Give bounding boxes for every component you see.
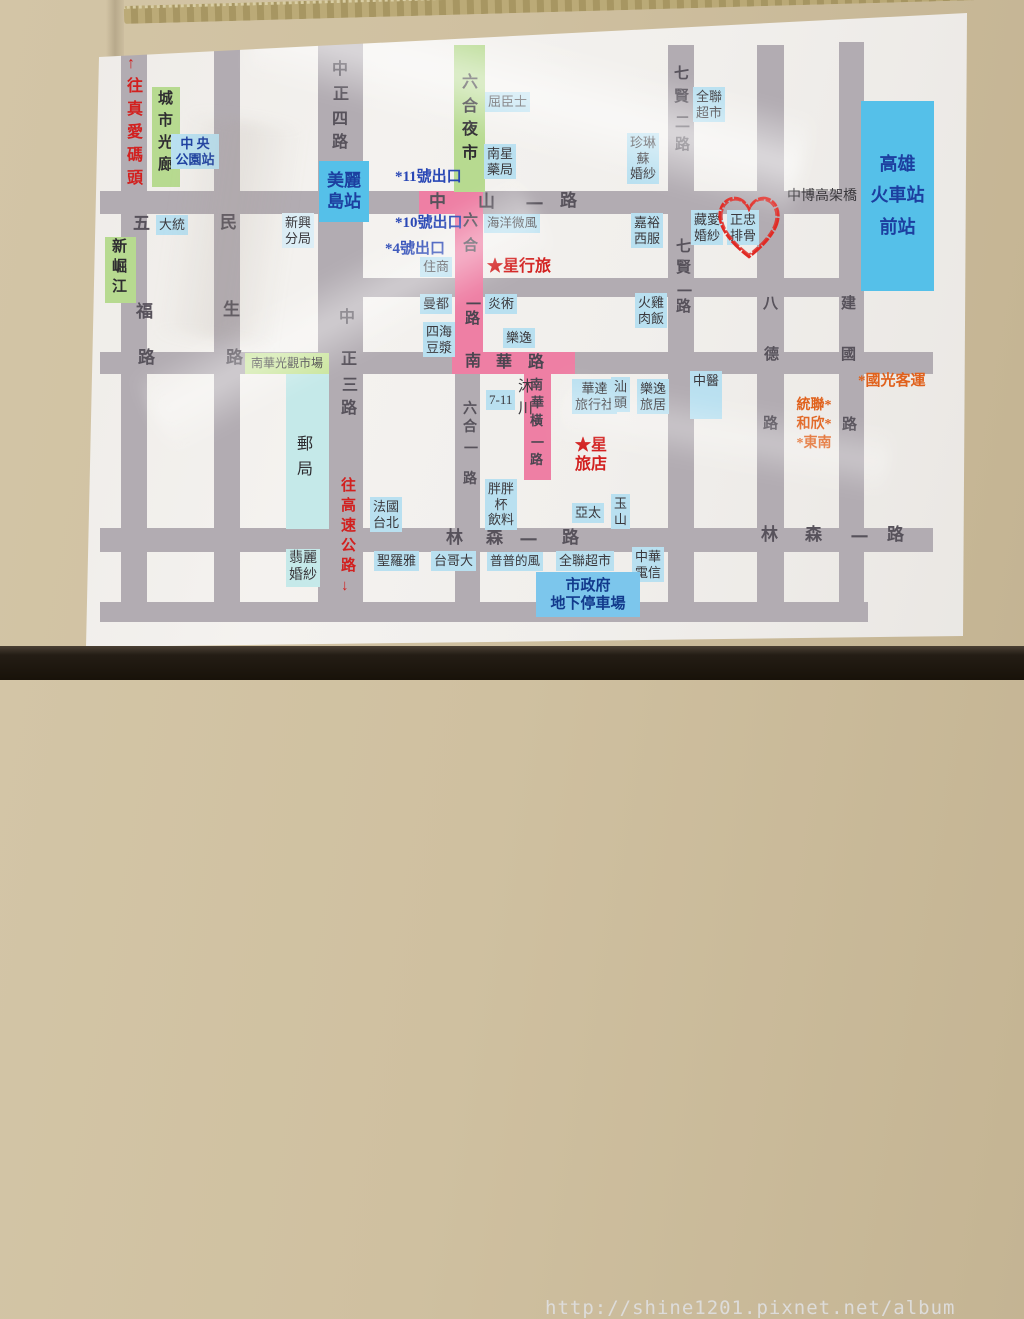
label-qixian-1-rd: 賢 <box>676 261 691 276</box>
label-zhongzheng-4-rd: 路 <box>332 135 348 151</box>
poi-xinxing-precinct: 新興分局 <box>282 213 314 248</box>
poi-nanxing-pharmacy: 南星藥局 <box>484 144 516 179</box>
poi-meilidao-station: 美麗島站 <box>319 161 369 222</box>
note-star-inn: ★星旅店 <box>575 436 607 474</box>
note-exit-4: *4號出口 <box>385 241 445 258</box>
label-zhongzheng-4-rd: 正 <box>333 87 349 103</box>
poi-france-taipei: 法國台北 <box>370 497 402 532</box>
poi-mandu: 曼都 <box>420 294 452 314</box>
label-zhongshan-1-rd: 一 <box>526 196 543 213</box>
label-liuhe-1-rd-lower: 路 <box>463 473 477 487</box>
label-linsen-1-rd-west: 一 <box>520 532 537 549</box>
poi-turkey-rice: 火雞肉飯 <box>635 293 667 328</box>
poi-ocean-breeze: 海洋微風 <box>484 214 540 233</box>
poi-pxmart-south: 全聯超市 <box>556 551 614 571</box>
road-qixian-rd <box>668 45 694 622</box>
label-zhongzheng-4-rd: 四 <box>332 112 348 128</box>
label-linsen-1-rd-east: 林 <box>761 526 778 543</box>
note-exit-11: *11號出口 <box>395 169 462 186</box>
note-zhongbo-viaduct: 中博高架橋 <box>787 189 857 205</box>
street-map: 中山一路五福路民生路中正四路中正三路六合一路六合一路南華路南華橫一路七賢二路七賢… <box>0 0 1024 680</box>
label-city-light-corridor: 城 <box>158 92 173 107</box>
label-zhongzheng-3-rd: 正 <box>341 352 357 368</box>
poi-leyi: 樂逸 <box>503 328 535 348</box>
label-xinjuejiang: 崛 <box>112 260 127 275</box>
watermark-url: http://shine1201.pixnet.net/album <box>545 1297 956 1319</box>
label-minsheng-rd: 生 <box>223 301 240 318</box>
label-liuhe-1-rd-lower: 六 <box>463 403 477 417</box>
poi-zhenlinsu-bridal: 珍琳蘇婚紗 <box>627 133 659 184</box>
label-linsen-1-rd-east: 森 <box>805 526 822 543</box>
label-zhongshan-1-rd: 中 <box>429 193 446 210</box>
label-minsheng-rd: 民 <box>220 214 237 231</box>
label-wufu-rd: 五 <box>133 215 150 232</box>
map-paper: 中山一路五福路民生路中正四路中正三路六合一路六合一路南華路南華橫一路七賢二路七賢… <box>0 0 1024 680</box>
label-qixian-2-rd: 二 <box>675 116 690 131</box>
label-xinjuejiang: 新 <box>112 240 127 255</box>
note-bus-companies: 統聯*和欣**東南 <box>789 396 839 453</box>
poi-shengluoya: 聖羅雅 <box>374 551 419 571</box>
label-liuhe-upper: 路 <box>465 312 480 327</box>
note-post-office: 郵局 <box>297 432 313 482</box>
label-qixian-2-rd: 路 <box>675 138 690 153</box>
label-zhongzheng-3-rd: 路 <box>341 401 357 417</box>
poi-city-hall-parking: 市政府地下停車場 <box>536 572 640 617</box>
photo-of-hand-drawn-map: 中山一路五福路民生路中正四路中正三路六合一路六合一路南華路南華橫一路七賢二路七賢… <box>0 0 1024 680</box>
label-liuhe-night-market: 市 <box>462 146 478 162</box>
label-xinjuejiang: 江 <box>112 280 127 295</box>
label-liuhe-1-rd-lower: 合 <box>463 421 477 435</box>
label-minsheng-rd: 路 <box>226 349 243 366</box>
poi-central-park-station: 中 央公園站 <box>171 134 219 169</box>
poi-leyi-hostel: 樂逸旅居 <box>637 379 669 414</box>
label-liuhe-upper: 合 <box>463 239 478 254</box>
heart-scribble-icon <box>711 191 787 263</box>
label-wufu-rd: 福 <box>136 303 153 320</box>
label-jianguo-rd: 路 <box>842 418 857 433</box>
label-linsen-1-rd-east: 路 <box>887 526 904 543</box>
label-zhongzheng-3-rd: 中 <box>339 310 355 326</box>
label-bade-rd: 路 <box>763 417 778 432</box>
label-bade-rd: 德 <box>764 348 779 363</box>
poi-watsons: 屈臣士 <box>485 92 530 112</box>
poi-pangpang-cup: 胖胖杯飲料 <box>485 479 517 530</box>
poi-datong: 大統 <box>156 215 188 235</box>
label-qixian-1-rd: 一 <box>677 285 692 300</box>
poi-nanhua-tourist-market: 南華光觀市場 <box>245 353 329 374</box>
poi-pxmart-north: 全聯超市 <box>693 87 725 122</box>
label-liuhe-night-market: 夜 <box>462 122 478 138</box>
label-linsen-1-rd-east: 一 <box>851 529 868 546</box>
label-linsen-1-rd-west: 林 <box>446 529 463 546</box>
note-muchuan: 沐川 <box>518 376 533 420</box>
poi-kaohsiung-station: 高雄火車站前站 <box>861 101 934 291</box>
poi-yanshu: 炎術 <box>485 294 517 314</box>
note-star-hotel: ★星行旅 <box>487 258 551 276</box>
label-qixian-2-rd: 七 <box>674 67 689 82</box>
poi-jiayu-suits: 嘉裕西服 <box>631 213 663 248</box>
label-liuhe-upper: 六 <box>463 214 478 229</box>
label-bade-rd: 八 <box>763 297 778 312</box>
label-nanhua-rd: 路 <box>528 355 544 371</box>
label-qixian-1-rd: 路 <box>676 300 691 315</box>
label-zhongshan-1-rd: 山 <box>478 193 495 210</box>
photo-watermark-bar: http://shine1201.pixnet.net/album <box>0 646 1024 680</box>
label-jianguo-rd: 建 <box>841 297 856 312</box>
poi-sihai-doujiang: 四海豆漿 <box>423 322 455 357</box>
note-to-highway: 往高速公路↓ <box>341 476 356 596</box>
poi-yatai: 亞太 <box>572 503 604 523</box>
label-nanhua-rd: 華 <box>496 355 512 371</box>
note-guoguang-bus: *國光客運 <box>858 373 926 390</box>
poi-shantou: 汕頭 <box>611 377 630 412</box>
label-liuhe-night-market: 六 <box>462 75 478 91</box>
label-nanhua-rd: 南 <box>465 354 481 370</box>
label-zhongzheng-4-rd: 中 <box>332 62 348 78</box>
label-qixian-1-rd: 七 <box>676 240 691 255</box>
note-exit-10: *10號出口 <box>395 215 463 232</box>
label-zhongzheng-3-rd: 三 <box>342 378 358 394</box>
poi-pupu-wind: 普普的風 <box>487 552 543 571</box>
poi-taigeda: 台哥大 <box>431 551 476 571</box>
poi-zhushang: 住商 <box>420 257 452 277</box>
label-liuhe-night-market: 合 <box>462 99 478 115</box>
note-to-zhenai-pier: ↑往真愛碼頭 <box>127 52 143 190</box>
label-nanhua-heng-1-rd: 一 <box>531 436 544 449</box>
label-linsen-1-rd-west: 路 <box>562 529 579 546</box>
poi-feili-bridal: 翡麗婚紗 <box>286 549 320 587</box>
label-zhongshan-1-rd: 路 <box>560 192 577 209</box>
label-linsen-1-rd-west: 森 <box>486 529 503 546</box>
poi-7-11: 7-11 <box>486 390 515 410</box>
label-nanhua-heng-1-rd: 路 <box>530 453 543 466</box>
label-jianguo-rd: 國 <box>841 348 856 363</box>
label-liuhe-1-rd-lower: 一 <box>464 443 478 457</box>
poi-chinese-medicine: 中醫 <box>690 371 722 419</box>
label-city-light-corridor: 市 <box>158 114 173 129</box>
road-minsheng-rd <box>214 45 240 622</box>
label-wufu-rd: 路 <box>138 349 155 366</box>
label-qixian-2-rd: 賢 <box>674 90 689 105</box>
poi-yushan: 玉山 <box>611 494 630 529</box>
